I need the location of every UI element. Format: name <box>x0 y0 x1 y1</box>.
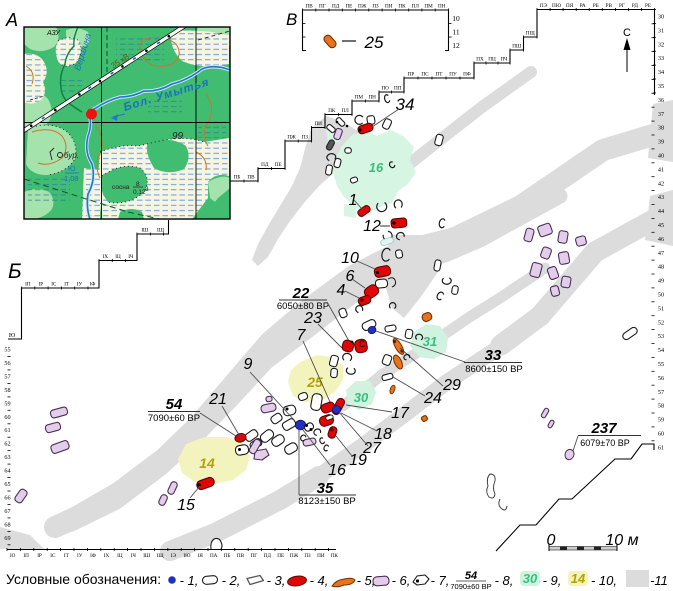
svg-text:9: 9 <box>244 356 253 373</box>
svg-text:32: 32 <box>658 41 664 48</box>
svg-text:ІУ: ІУ <box>77 282 83 288</box>
svg-text:ПД: ПД <box>261 162 269 168</box>
svg-text:ПГ: ПГ <box>319 4 326 10</box>
svg-text:23: 23 <box>303 310 322 327</box>
svg-text:64: 64 <box>4 468 10 475</box>
svg-text:РВ: РВ <box>606 3 613 9</box>
svg-text:ПИ: ПИ <box>314 121 322 127</box>
svg-text:ПУ: ПУ <box>449 72 457 78</box>
svg-text:16: 16 <box>369 160 384 175</box>
svg-text:35: 35 <box>658 83 664 90</box>
svg-text:29: 29 <box>442 377 461 394</box>
svg-text:37: 37 <box>658 111 664 118</box>
svg-text:63: 63 <box>4 454 10 461</box>
svg-text:49: 49 <box>658 278 664 285</box>
svg-text:48: 48 <box>658 264 664 271</box>
svg-text:25: 25 <box>364 33 384 52</box>
svg-text:ПШ: ПШ <box>512 44 522 50</box>
svg-text:59: 59 <box>4 400 10 407</box>
svg-text:Ю: Ю <box>9 332 16 339</box>
svg-text:7: 7 <box>297 327 307 344</box>
svg-text:12: 12 <box>452 41 460 50</box>
svg-text:ПЕ: ПЕ <box>345 4 352 10</box>
svg-text:-11: -11 <box>650 573 668 588</box>
svg-text:25: 25 <box>306 374 323 390</box>
svg-text:ПЛ: ПЛ <box>342 108 350 114</box>
svg-text:17: 17 <box>391 405 410 422</box>
svg-text:31: 31 <box>423 334 437 349</box>
svg-text:6079±70 ВР: 6079±70 ВР <box>580 438 629 448</box>
svg-text:ПЛ: ПЛ <box>412 4 420 10</box>
svg-text:30: 30 <box>523 571 538 586</box>
svg-text:Ю: Ю <box>68 164 76 173</box>
svg-text:ПМ: ПМ <box>424 4 433 10</box>
svg-text:31: 31 <box>658 27 664 34</box>
svg-text:Условные обозначения:: Условные обозначения: <box>6 571 161 587</box>
svg-text:52: 52 <box>658 319 664 326</box>
svg-text:ІЦ: ІЦ <box>115 254 121 260</box>
svg-text:ПМ: ПМ <box>355 95 364 101</box>
svg-text:ПИ: ПИ <box>385 4 393 10</box>
svg-text:10: 10 <box>452 14 460 23</box>
svg-text:А: А <box>5 10 18 30</box>
svg-text:ІР: ІР <box>39 282 44 288</box>
svg-text:40: 40 <box>658 153 664 160</box>
svg-text:33: 33 <box>485 347 502 364</box>
svg-text:58: 58 <box>4 387 10 394</box>
svg-text:50: 50 <box>658 292 664 299</box>
svg-text:36: 36 <box>658 97 664 104</box>
svg-text:ІТ: ІТ <box>64 553 70 559</box>
svg-text:ПЖ: ПЖ <box>358 4 367 10</box>
svg-text:55: 55 <box>658 361 664 368</box>
svg-text:РГ: РГ <box>619 3 625 9</box>
svg-text:ПК: ПК <box>328 108 336 114</box>
svg-text:237: 237 <box>590 420 617 437</box>
svg-text:ІШ: ІШ <box>141 228 149 234</box>
svg-text:ПХ: ПХ <box>476 57 484 63</box>
svg-text:57: 57 <box>4 373 10 380</box>
svg-text:99: 99 <box>172 131 184 142</box>
svg-text:38: 38 <box>658 125 664 132</box>
svg-text:54: 54 <box>658 347 664 354</box>
svg-text:ІУ: ІУ <box>77 553 83 559</box>
svg-text:34: 34 <box>658 69 664 76</box>
svg-text:ПН: ПН <box>438 4 446 10</box>
svg-text:ПЗ: ПЗ <box>302 135 309 141</box>
svg-text:21: 21 <box>208 391 227 408</box>
svg-text:АЗУ: АЗУ <box>46 30 61 37</box>
svg-text:ІЭ: ІЭ <box>171 553 177 559</box>
svg-text:42: 42 <box>658 180 664 187</box>
svg-text:6: 6 <box>346 268 355 285</box>
svg-text:ПЭ: ПЭ <box>540 3 548 9</box>
svg-text:54: 54 <box>166 396 183 413</box>
svg-text:ПЩ: ПЩ <box>526 31 536 37</box>
svg-text:ПК: ПК <box>331 553 339 559</box>
svg-text:- 2,: - 2, <box>222 573 241 588</box>
svg-text:7090±60 ВР: 7090±60 ВР <box>450 582 491 591</box>
svg-text:ПЧ: ПЧ <box>500 57 508 63</box>
svg-text:ІХ: ІХ <box>103 254 109 260</box>
svg-text:ПС: ПС <box>421 72 429 78</box>
svg-text:ІР: ІР <box>37 553 42 559</box>
svg-text:ПР: ПР <box>408 72 415 78</box>
svg-text:58: 58 <box>658 403 664 410</box>
svg-text:ПН: ПН <box>368 95 376 101</box>
svg-text:ПВ: ПВ <box>237 553 245 559</box>
svg-text:57: 57 <box>658 389 664 396</box>
svg-text:51: 51 <box>658 305 664 312</box>
svg-text:30: 30 <box>658 14 664 21</box>
svg-text:ПВ: ПВ <box>247 175 255 181</box>
svg-text:ПЯ: ПЯ <box>566 3 574 9</box>
svg-text:- 3,: - 3, <box>267 573 286 588</box>
svg-text:ІШ: ІШ <box>143 553 151 559</box>
svg-text:РД: РД <box>632 3 638 9</box>
svg-text:60: 60 <box>658 431 664 438</box>
svg-text:ПО: ПО <box>381 86 389 92</box>
svg-text:ІП: ІП <box>23 553 29 559</box>
svg-text:ІФ: ІФ <box>90 282 96 288</box>
svg-text:ПА: ПА <box>210 553 218 559</box>
svg-text:10: 10 <box>341 250 359 267</box>
svg-text:- 7,: - 7, <box>431 573 450 588</box>
svg-text:ІС: ІС <box>51 282 57 288</box>
svg-text:ІП: ІП <box>25 282 31 288</box>
svg-text:- 8,: - 8, <box>495 573 514 588</box>
svg-text:В: В <box>286 10 297 29</box>
svg-text:ПБ: ПБ <box>224 553 231 559</box>
svg-text:ПЕ: ПЕ <box>275 162 282 168</box>
svg-text:3: 3 <box>145 186 149 193</box>
svg-text:ПЗ: ПЗ <box>304 553 311 559</box>
svg-text:35: 35 <box>317 480 334 497</box>
svg-text:44: 44 <box>658 208 664 215</box>
svg-text:8600±150 BP: 8600±150 BP <box>465 364 523 375</box>
svg-text:15: 15 <box>177 497 195 514</box>
svg-text:ІЮ: ІЮ <box>183 553 191 559</box>
svg-text:61: 61 <box>4 427 10 434</box>
svg-text:ПТ: ПТ <box>436 72 444 78</box>
svg-text:ПЮ: ПЮ <box>552 3 562 9</box>
svg-text:Б: Б <box>8 260 22 283</box>
svg-text:ПФ: ПФ <box>463 72 471 78</box>
svg-text:16: 16 <box>328 462 346 479</box>
svg-text:ПД: ПД <box>264 553 272 559</box>
svg-text:65: 65 <box>4 481 10 488</box>
svg-text:1: 1 <box>349 192 358 209</box>
svg-text:ІЧ: ІЧ <box>128 254 134 260</box>
svg-text:ПЖ: ПЖ <box>290 553 299 559</box>
svg-text:ПБ: ПБ <box>234 175 241 181</box>
svg-text:12: 12 <box>363 218 381 235</box>
svg-text:56: 56 <box>658 375 664 382</box>
svg-text:ІС: ІС <box>50 553 56 559</box>
svg-text:ПИ: ПИ <box>317 553 325 559</box>
svg-text:19: 19 <box>349 452 367 469</box>
svg-text:4: 4 <box>337 282 346 299</box>
svg-text:ПЕ: ПЕ <box>277 553 284 559</box>
svg-text:РЕ: РЕ <box>645 3 651 9</box>
svg-text:14: 14 <box>199 455 215 471</box>
svg-text:14: 14 <box>571 571 586 586</box>
svg-text:бур.: бур. <box>64 151 79 160</box>
svg-text:62: 62 <box>4 441 10 448</box>
svg-text:РБ: РБ <box>593 3 599 9</box>
svg-text:43: 43 <box>658 194 664 201</box>
svg-text:- 4,: - 4, <box>310 573 329 588</box>
svg-text:ІЯ: ІЯ <box>198 553 204 559</box>
svg-text:ПД: ПД <box>332 4 340 10</box>
svg-text:53: 53 <box>658 333 664 340</box>
svg-text:8123±150 BP: 8123±150 BP <box>298 496 356 507</box>
svg-text:ІФ: ІФ <box>90 553 96 559</box>
svg-text:54: 54 <box>465 570 477 582</box>
svg-text:сосна: сосна <box>112 184 130 191</box>
svg-text:- 10,: - 10, <box>591 573 617 588</box>
svg-text:69: 69 <box>4 535 10 542</box>
svg-text:30: 30 <box>354 390 369 405</box>
svg-text:55: 55 <box>4 347 10 354</box>
svg-text:34: 34 <box>396 95 415 114</box>
svg-text:ІЦ: ІЦ <box>117 553 123 559</box>
svg-text:46: 46 <box>658 236 664 243</box>
svg-text:66: 66 <box>4 494 10 501</box>
svg-text:11: 11 <box>452 28 459 37</box>
svg-text:РА: РА <box>580 3 586 9</box>
svg-text:- 9,: - 9, <box>543 573 562 588</box>
svg-text:22: 22 <box>292 285 310 302</box>
svg-text:ІЧ: ІЧ <box>131 553 137 559</box>
svg-text:ПЦ: ПЦ <box>488 57 496 63</box>
svg-text:41: 41 <box>658 166 664 173</box>
svg-text:60: 60 <box>4 414 10 421</box>
svg-text:ІО: ІО <box>10 553 16 559</box>
svg-text:24: 24 <box>423 390 442 407</box>
svg-text:67: 67 <box>4 508 10 515</box>
svg-text:45: 45 <box>658 222 664 229</box>
svg-text:33: 33 <box>658 55 664 62</box>
svg-text:1,08: 1,08 <box>64 174 79 183</box>
svg-text:ПЗ: ПЗ <box>372 4 379 10</box>
svg-text:61: 61 <box>658 444 664 451</box>
svg-text:ПЖ: ПЖ <box>287 135 296 141</box>
svg-text:ІТ: ІТ <box>64 282 70 288</box>
svg-text:ІХ: ІХ <box>104 553 110 559</box>
svg-text:ПВ: ПВ <box>305 4 313 10</box>
svg-text:ІЩ: ІЩ <box>157 553 165 559</box>
svg-text:68: 68 <box>4 521 10 528</box>
svg-text:ІЩ: ІЩ <box>157 228 165 234</box>
svg-text:7090±60 ВР: 7090±60 ВР <box>148 413 200 424</box>
svg-text:ПГ: ПГ <box>251 553 258 559</box>
svg-text:56: 56 <box>4 360 10 367</box>
svg-text:47: 47 <box>658 250 664 257</box>
svg-text:ПП: ПП <box>394 86 402 92</box>
svg-text:ПК: ПК <box>398 4 406 10</box>
svg-text:59: 59 <box>658 417 664 424</box>
svg-text:- 6,: - 6, <box>392 573 411 588</box>
svg-text:С: С <box>623 27 631 39</box>
svg-text:39: 39 <box>658 139 664 146</box>
svg-text:- 1,: - 1, <box>180 573 199 588</box>
